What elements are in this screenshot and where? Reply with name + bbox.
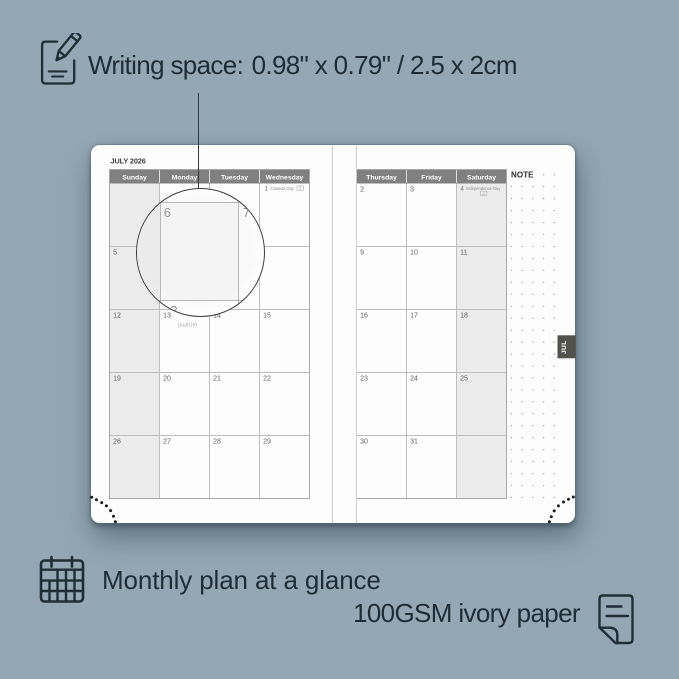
svg-text:NOTE: NOTE [511,171,534,180]
svg-text:5: 5 [113,250,117,257]
svg-text:27: 27 [163,439,171,446]
svg-text:23: 23 [360,376,368,383]
svg-text:20: 20 [163,376,171,383]
svg-text:31: 31 [410,439,418,446]
svg-text:29: 29 [263,439,271,446]
svg-text:11: 11 [460,250,467,257]
svg-text:JUL: JUL [561,340,568,354]
svg-text:12: 12 [113,313,121,320]
svg-text:Canada Day: Canada Day [271,186,295,191]
svg-text:24: 24 [410,376,418,383]
svg-text:21: 21 [213,376,221,383]
svg-text:26: 26 [113,439,121,446]
svg-text:18: 18 [460,313,468,320]
svg-text:17: 17 [410,313,418,320]
svg-text:Saturday: Saturday [467,174,496,181]
svg-text:1: 1 [265,187,269,193]
svg-text:2: 2 [360,187,364,194]
svg-text:(null)(s): (null)(s) [178,322,198,329]
svg-text:JULY 2026: JULY 2026 [111,156,146,165]
svg-text:19: 19 [113,376,121,383]
svg-text:Wednesday: Wednesday [266,174,304,181]
svg-text:Independence Day: Independence Day [466,186,501,191]
svg-text:30: 30 [360,439,368,446]
svg-text:Sunday: Sunday [122,174,147,181]
svg-text:Thursday: Thursday [366,174,397,181]
svg-text:Monday: Monday [172,174,198,181]
svg-text:Tuesday: Tuesday [221,174,248,181]
svg-text:22: 22 [263,376,271,383]
svg-text:25: 25 [460,376,468,383]
svg-text:28: 28 [213,439,221,446]
svg-text:3: 3 [410,187,414,194]
svg-text:15: 15 [263,313,271,320]
svg-text:10: 10 [410,250,418,257]
svg-text:16: 16 [360,313,368,320]
svg-text:Friday: Friday [421,174,442,181]
svg-text:9: 9 [360,250,364,257]
